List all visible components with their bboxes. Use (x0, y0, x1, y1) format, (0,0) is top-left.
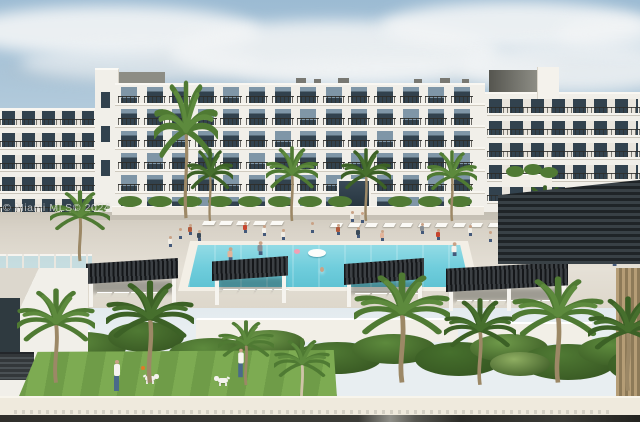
mls-watermark: © Miami MLS© 2024 (3, 202, 110, 214)
palm-tree (444, 298, 516, 386)
watermark-noise-strip (14, 410, 614, 414)
palm-tree (17, 288, 95, 384)
dark-fence-strip (0, 415, 640, 422)
palm-tree (588, 296, 640, 392)
palm-tree (354, 272, 450, 384)
palm-tree (106, 280, 194, 384)
listing-photo: © Miami MLS© 2024 (0, 0, 640, 422)
palm-tree (218, 320, 274, 386)
